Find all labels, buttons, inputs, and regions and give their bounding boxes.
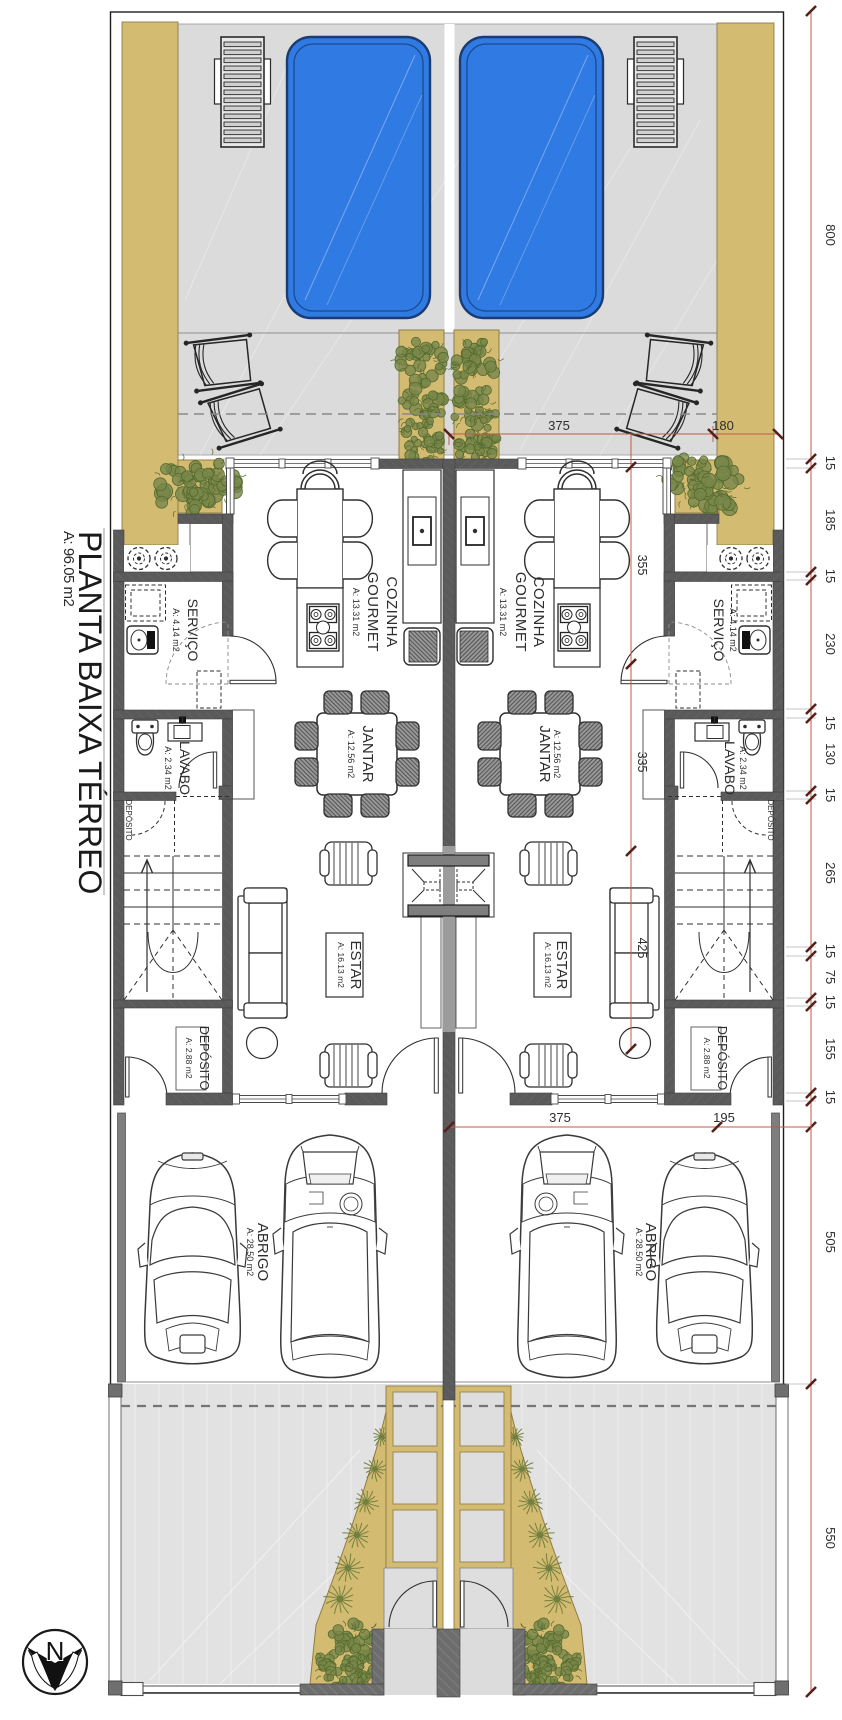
svg-text:A: 96.05 m2: A: 96.05 m2 <box>60 531 77 607</box>
svg-text:15: 15 <box>823 995 838 1009</box>
svg-text:SERVIÇO: SERVIÇO <box>185 599 201 662</box>
svg-text:SERVIÇO: SERVIÇO <box>711 599 727 662</box>
svg-text:335: 335 <box>635 752 649 773</box>
svg-text:JANTAR: JANTAR <box>536 725 553 782</box>
svg-text:GOURMET: GOURMET <box>364 572 381 652</box>
svg-text:COZINHA: COZINHA <box>383 577 400 648</box>
svg-text:DEPÓSITO: DEPÓSITO <box>766 799 775 840</box>
svg-text:355: 355 <box>635 555 649 576</box>
svg-text:A: 2.34 m2: A: 2.34 m2 <box>163 746 173 790</box>
svg-text:JANTAR: JANTAR <box>359 725 376 782</box>
svg-text:15: 15 <box>823 716 838 730</box>
svg-text:15: 15 <box>823 456 838 470</box>
svg-text:GOURMET: GOURMET <box>512 572 529 652</box>
svg-text:185: 185 <box>823 509 838 531</box>
svg-text:375: 375 <box>549 1110 571 1125</box>
svg-text:550: 550 <box>823 1527 838 1549</box>
svg-text:15: 15 <box>823 1090 838 1104</box>
svg-text:DEPÓSITO: DEPÓSITO <box>715 1026 730 1091</box>
svg-text:A: 28.50 m2: A: 28.50 m2 <box>634 1228 644 1277</box>
svg-text:A: 16.13 m2: A: 16.13 m2 <box>336 942 346 988</box>
svg-text:DEPÓSITO: DEPÓSITO <box>197 1026 212 1091</box>
svg-text:A: 4.14 m2: A: 4.14 m2 <box>171 608 181 652</box>
svg-text:A: 13.31 m2: A: 13.31 m2 <box>498 588 508 637</box>
svg-text:ABRIGO: ABRIGO <box>254 1223 271 1281</box>
svg-text:A: 2.34 m2: A: 2.34 m2 <box>738 746 748 790</box>
svg-text:505: 505 <box>823 1231 838 1253</box>
svg-text:DEPÓSITO: DEPÓSITO <box>124 799 133 840</box>
svg-text:15: 15 <box>823 944 838 958</box>
svg-text:195: 195 <box>713 1110 735 1125</box>
svg-text:A: 2.88 m2: A: 2.88 m2 <box>184 1037 194 1078</box>
svg-text:LAVABO: LAVABO <box>177 741 193 795</box>
svg-text:230: 230 <box>823 633 838 655</box>
svg-text:15: 15 <box>823 788 838 802</box>
svg-text:A: 16.13 m2: A: 16.13 m2 <box>543 942 553 988</box>
svg-text:ESTAR: ESTAR <box>347 941 364 990</box>
svg-text:180: 180 <box>712 418 734 433</box>
svg-text:ESTAR: ESTAR <box>553 941 570 990</box>
svg-text:375: 375 <box>548 418 570 433</box>
svg-text:A: 13.31 m2: A: 13.31 m2 <box>351 588 361 637</box>
svg-text:75: 75 <box>823 970 838 984</box>
svg-text:N: N <box>46 1636 65 1666</box>
svg-text:15: 15 <box>823 569 838 583</box>
svg-text:425: 425 <box>635 938 649 959</box>
svg-text:130: 130 <box>823 743 838 765</box>
svg-text:COZINHA: COZINHA <box>530 577 547 648</box>
svg-text:A: 28.50 m2: A: 28.50 m2 <box>245 1228 255 1277</box>
svg-text:A: 4.14 m2: A: 4.14 m2 <box>728 608 738 652</box>
svg-text:A: 2.88 m2: A: 2.88 m2 <box>702 1037 712 1078</box>
svg-text:800: 800 <box>823 224 838 246</box>
svg-text:A: 12.56 m2: A: 12.56 m2 <box>552 730 562 779</box>
svg-text:A: 12.56 m2: A: 12.56 m2 <box>346 730 356 779</box>
svg-text:LAVABO: LAVABO <box>722 741 738 795</box>
svg-text:155: 155 <box>823 1038 838 1060</box>
svg-text:265: 265 <box>823 862 838 884</box>
